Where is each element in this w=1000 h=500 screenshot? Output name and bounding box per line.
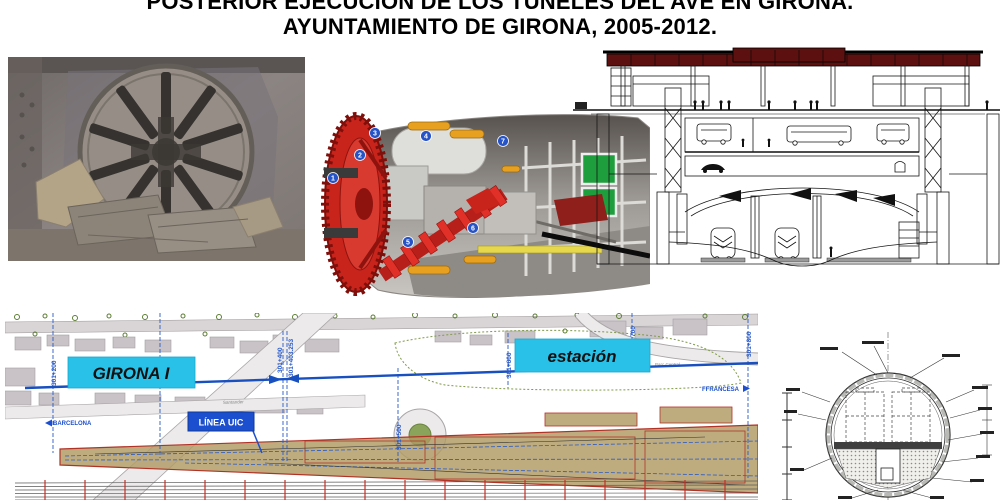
slide-title-line1: POSTERIOR EJECUCIÓN DE LOS TÚNELES DEL A…: [0, 0, 1000, 15]
svg-text:700: 700: [630, 326, 637, 337]
svg-text:301+403.253: 301+403.253: [288, 338, 295, 377]
svg-text:3: 3: [373, 131, 377, 138]
station-roof: [603, 48, 983, 66]
svg-text:5: 5: [406, 240, 410, 247]
tbm-breakthrough-photo: [8, 57, 305, 261]
svg-text:LÍNEA UIC: LÍNEA UIC: [199, 418, 244, 428]
svg-text:BARCELONA: BARCELONA: [53, 421, 92, 427]
svg-text:GIRONA I: GIRONA I: [93, 364, 171, 383]
svg-text:4: 4: [424, 134, 428, 141]
bus-level: [685, 118, 919, 152]
scale-ruler: [782, 393, 792, 500]
slide: POSTERIOR EJECUCIÓN DE LOS TÚNELES DEL A…: [0, 0, 1000, 500]
barcelona-label: BARCELONA: [45, 420, 92, 428]
car-level: [685, 156, 919, 176]
svg-text:7: 7: [501, 139, 505, 146]
svg-text:301+400: 301+400: [277, 347, 284, 373]
svg-text:1: 1: [331, 176, 335, 183]
girona-label: GIRONA I: [68, 357, 195, 388]
svg-text:301+500: 301+500: [396, 424, 403, 450]
santander-label: Santander: [223, 399, 244, 405]
svg-text:6: 6: [471, 226, 475, 233]
train-hall: [677, 188, 927, 262]
svg-text:301+600: 301+600: [506, 352, 513, 378]
svg-text:301+200: 301+200: [51, 360, 58, 386]
tunnel-ring-section: [782, 330, 1000, 500]
track-slab: [834, 442, 942, 449]
cutter-wheel: [324, 116, 387, 292]
estacion-label: estación: [515, 339, 650, 372]
svg-text:estación: estación: [548, 347, 617, 366]
slide-title-line2: AYUNTAMIENTO DE GIRONA, 2005-2012.: [0, 14, 1000, 40]
svg-text:FFRANCESA: FFRANCESA: [702, 387, 740, 393]
station-cross-section: [573, 44, 1000, 268]
street-level: [573, 100, 1000, 114]
svg-text:301+800: 301+800: [746, 331, 753, 357]
central-drain: [876, 449, 900, 483]
alignment-plan-map: Santander Parc Central: [5, 313, 758, 500]
svg-text:2: 2: [358, 153, 362, 160]
